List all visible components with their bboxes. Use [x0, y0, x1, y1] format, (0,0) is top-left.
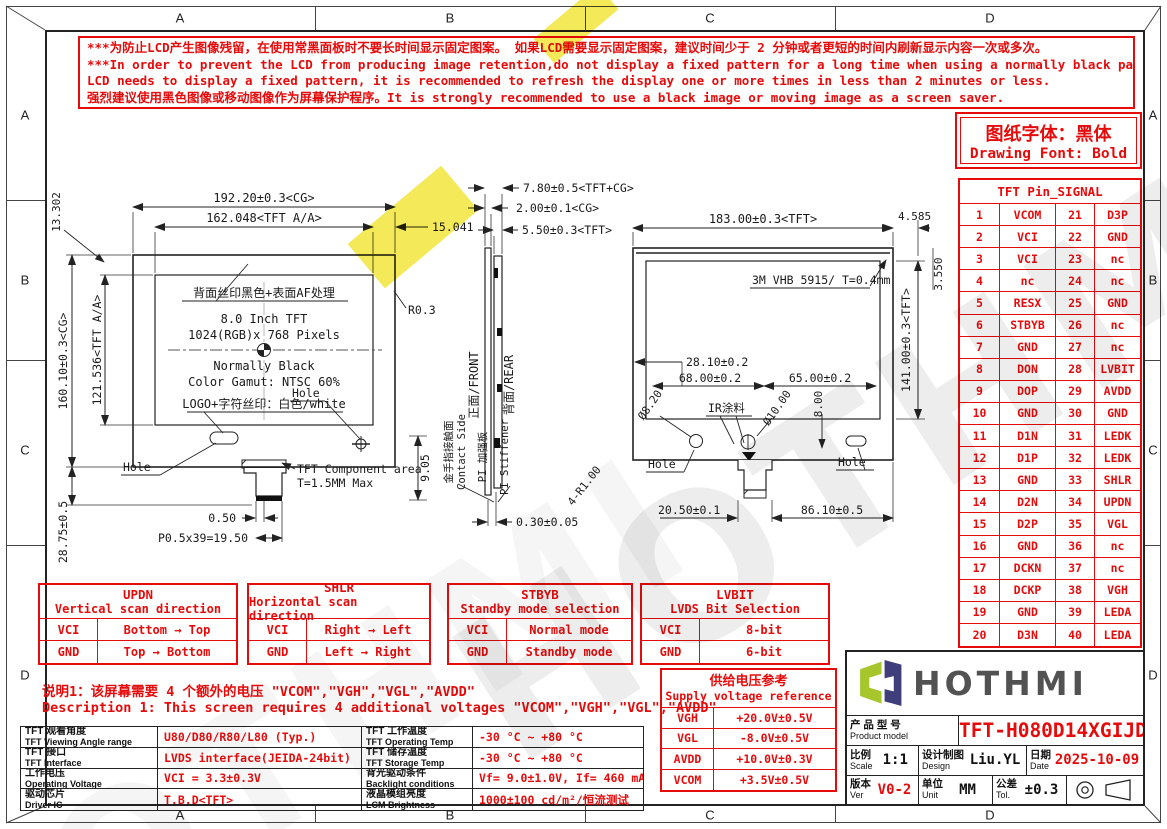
frame-tick [835, 806, 836, 823]
dim-gap: 15.041 [432, 220, 474, 234]
font-note-en: Drawing Font: Bold [970, 146, 1127, 162]
front-side-label: 正面/FRONT [467, 351, 481, 418]
pin-number-cell: 25 [1055, 292, 1094, 314]
spec-value: U80/D80/R80/L80 (Typ.) [157, 727, 361, 748]
pin-signal-cell: nc [1094, 536, 1140, 558]
pin-signal-cell: DON [999, 359, 1055, 381]
pin-signal-cell: RESX [999, 292, 1055, 314]
title-block: HOTHMI 产 品 型 号 Product model TFT-H080D14… [845, 650, 1145, 806]
pin-signal-cell: VGH [1094, 580, 1140, 602]
pin-signal-cell: LEDK [1094, 447, 1140, 469]
spec-label: TFT 接口TFT Interface [21, 748, 157, 769]
panel-mode-text: Normally Black [213, 359, 315, 373]
hole-label: Hole [292, 386, 320, 400]
pin-number-cell: 15 [960, 513, 999, 535]
spec-label: 背光驱动条件Backlight conditions [361, 769, 472, 790]
unit-label-zh: 单位 [922, 779, 943, 790]
hole-label: Hole [838, 455, 866, 469]
pin-signal-cell: nc [999, 270, 1055, 292]
dim-pi-thickness: 0.30±0.05 [516, 515, 578, 529]
grid-row-label: C [1148, 443, 1157, 458]
pin-signal-cell: nc [1094, 315, 1140, 337]
scan-table-title: UPDN [123, 587, 153, 602]
pin-number-cell: 5 [960, 292, 999, 314]
hothmi-logo-icon [855, 657, 905, 709]
pin-signal-cell: LVBIT [1094, 359, 1140, 381]
projection-symbol-icon [1074, 779, 1136, 801]
rear-side-label: 背面/REAR [502, 354, 516, 415]
dim-2810: 28.10±0.2 [686, 355, 748, 369]
date-label-zh: 日期 [1030, 750, 1051, 761]
spec-label: 驱动芯片Driver IC [21, 789, 157, 810]
dim-tft-height: 141.00±0.3<TFT> [899, 288, 913, 392]
model-label-zh: 产 品 型 号 [850, 720, 908, 731]
design-label-zh: 设计制图 [922, 750, 964, 761]
spec-value: -30 °C ~ +80 °C [472, 748, 643, 769]
pin-signal-cell: VGL [1094, 513, 1140, 535]
scan-signal-label: VCI [642, 619, 700, 641]
pin-signal-cell: LEDA [1094, 602, 1140, 624]
supply-value: +3.5V±0.5V [714, 770, 835, 791]
pin-number-cell: 20 [960, 624, 999, 646]
dim-pitch: P0.5x39=19.50 [158, 531, 248, 545]
scan-signal-label: GND [449, 641, 507, 663]
scan-table-rows: VCI8-bitGND6-bit [642, 619, 828, 663]
pin-signal-cell: GND [1094, 292, 1140, 314]
component-area-note: TFT Component area [297, 462, 422, 476]
dim-tft-width: 183.00±0.3<TFT> [709, 212, 817, 226]
pin-signal-cell: D1N [999, 425, 1055, 447]
supply-signal-label: AVDD [662, 749, 714, 770]
grid-row-label: A [21, 108, 30, 123]
pin-number-cell: 27 [1055, 337, 1094, 359]
spec-label-en: Operating Voltage [25, 779, 157, 789]
pin-signal-cell: nc [1094, 248, 1140, 270]
scan-signal-label: GND [40, 641, 98, 663]
supply-signal-label: VCOM [662, 770, 714, 791]
unit-value: MM [959, 782, 976, 798]
component-area-thickness: T=1.5MM Max [297, 476, 373, 490]
supply-signal-label: VGH [662, 708, 714, 729]
pin-number-cell: 14 [960, 491, 999, 513]
supply-signal-label: VGL [662, 729, 714, 750]
dim-3550: 3.550 [932, 257, 945, 290]
pin-signal-cell: UPDN [1094, 491, 1140, 513]
dim-corner-r: 4-R1.00 [565, 464, 604, 509]
pin-number-cell: 38 [1055, 580, 1094, 602]
date-label-en: Date [1030, 761, 1051, 771]
grid-col-label: C [705, 11, 714, 26]
pin-table-rows: 1VCOM21D3P2VCI22GND3VCI23nc4nc24nc5RESX2… [960, 204, 1140, 646]
scan-signal-label: GND [642, 641, 700, 663]
spec-label-zh: 工作电压 [25, 769, 157, 779]
pin-number-cell: 24 [1055, 270, 1094, 292]
spec-label-en: TFT Operating Temp [366, 737, 472, 747]
ver-label-en: Ver [850, 790, 871, 800]
pin-signal-cell: LEDK [1094, 425, 1140, 447]
spec-value: T.B.D<TFT> [157, 789, 361, 810]
pin-number-cell: 30 [1055, 403, 1094, 425]
supply-value: +10.0V±0.3V [714, 749, 835, 770]
scan-table-subtitle: Vertical scan direction [55, 602, 221, 616]
drawing-sheet: A B C D A B C D A B C D A B C D ***为防止LC… [0, 0, 1167, 829]
warning-line: 强烈建议使用黑色图像或移动图像作为屏幕保护程序。It is strongly r… [87, 90, 1126, 107]
scan-table-rows: VCINormal modeGNDStandby mode [449, 619, 631, 663]
spec-label-en: Backlight conditions [366, 779, 472, 789]
tol-label-zh: 公差 [996, 779, 1017, 790]
pin-signal-cell: GND [1094, 226, 1140, 248]
pin-number-cell: 36 [1055, 536, 1094, 558]
note1-en: Description 1: This screen requires 4 ad… [42, 700, 717, 716]
grid-row-label: B [1149, 273, 1158, 288]
scan-value: Right → Left [307, 619, 429, 641]
pin-number-cell: 26 [1055, 315, 1094, 337]
scan-value: Normal mode [507, 619, 631, 641]
logo-row: HOTHMI [847, 652, 1143, 716]
pin-number-cell: 33 [1055, 469, 1094, 491]
scan-value: Standby mode [507, 641, 631, 663]
frame-tick [315, 6, 316, 30]
dim-cg-height: 160.10±0.3<CG> [56, 312, 70, 409]
pin-signal-cell: STBYB [999, 315, 1055, 337]
warning-line: LCD needs to display a fixed pattern, it… [87, 73, 1126, 90]
ver-unit-tol-row: 版本 Ver V0-2 单位 Unit MM 公差 Tol. ±0.3 [847, 776, 1143, 804]
scan-value: 8-bit [700, 619, 828, 641]
scan-value: Top → Bottom [98, 641, 236, 663]
spec-value: VCI = 3.3±0.3V [157, 769, 361, 790]
warning-line: ***In order to prevent the LCD from prod… [87, 57, 1126, 74]
pin-number-cell: 13 [960, 469, 999, 491]
scale-label-zh: 比例 [850, 750, 873, 761]
scan-value: 6-bit [700, 641, 828, 663]
pin-signal-cell: DOP [999, 381, 1055, 403]
model-row: 产 品 型 号 Product model TFT-H080D14XGIJDKG… [847, 716, 1143, 746]
pin-number-cell: 18 [960, 580, 999, 602]
dim-total-thickness: 7.80±0.5<TFT+CG> [523, 181, 634, 195]
frame-tick [1145, 200, 1161, 201]
scan-signal-label: VCI [40, 619, 98, 641]
pin-signal-cell: VCI [999, 226, 1055, 248]
dim-tft-thickness: 5.50±0.3<TFT> [522, 223, 612, 237]
pin-number-cell: 1 [960, 204, 999, 226]
grid-col-label: D [985, 808, 994, 823]
logo-silk-note: LOGO+字符丝印：白色/white [182, 396, 345, 411]
scan-table-rows: VCIRight → LeftGNDLeft → Right [249, 619, 429, 663]
spec-value: Vf= 9.0±1.0V, If= 460 mA [472, 769, 643, 790]
scale-design-date-row: 比例 Scale 1:1 设计制图 Design Liu.YL 日期 Date … [847, 746, 1143, 775]
pin-signal-cell: AVDD [1094, 381, 1140, 403]
contact-side-zh: 金手指接触面 [442, 421, 455, 484]
spec-label-zh: TFT 接口 [25, 748, 157, 758]
grid-col-label: A [176, 11, 185, 26]
pin-number-cell: 19 [960, 602, 999, 624]
pin-signal-cell: GND [999, 602, 1055, 624]
scan-signal-label: VCI [249, 619, 307, 641]
grid-col-label: B [446, 11, 455, 26]
pi-stiffener-zh: PI 加强板 [476, 431, 489, 482]
drawing-font-note: 图纸字体：黑体 Drawing Font: Bold [955, 112, 1142, 169]
pin-signal-cell: SHLR [1094, 469, 1140, 491]
spec-label: TFT 观看角度TFT Viewing Angle range [21, 727, 157, 748]
spec-label-en: TFT Interface [25, 758, 157, 768]
scan-value: Bottom → Top [98, 619, 236, 641]
note1-zh: 说明1：该屏幕需要 4 个额外的电压 "VCOM","VGH","VGL","A… [42, 680, 475, 700]
dim-cg-thickness: 2.00±0.1<CG> [516, 201, 599, 215]
vhb-tape-note: 3M VHB 5915/ T=0.4mm [752, 273, 891, 287]
spec-label-zh: 背光驱动条件 [366, 769, 472, 779]
pin-signal-cell: nc [1094, 337, 1140, 359]
front-view: 192.20±0.3<CG> 162.048<TFT A/A> 15.041 1… [50, 191, 474, 563]
date-value: 2025-10-09 [1055, 752, 1139, 768]
pin-number-cell: 34 [1055, 491, 1094, 513]
scan-signal-label: GND [249, 641, 307, 663]
pin-signal-cell: VCI [999, 248, 1055, 270]
hole-label: Hole [648, 457, 676, 471]
pin-signal-cell: LEDA [1094, 624, 1140, 646]
hole-label: Hole [123, 460, 151, 474]
warning-line: ***为防止LCD产生图像残留，在使用常黑面板时不要长时间显示固定图案。 如果L… [87, 40, 1126, 57]
pin-number-cell: 12 [960, 447, 999, 469]
dim-8610: 86.10±0.5 [801, 503, 863, 517]
dim-aa-width: 162.048<TFT A/A> [206, 211, 322, 225]
scale-value: 1:1 [883, 752, 908, 768]
panel-size-text: 8.0 Inch TFT [221, 312, 308, 326]
spec-label-zh: TFT 工作温度 [366, 727, 472, 737]
pin-number-cell: 2 [960, 226, 999, 248]
spec-label-en: Driver IC [25, 800, 157, 810]
frame-tick [1145, 360, 1161, 361]
spec-value: -30 °C ~ +80 °C [472, 727, 643, 748]
pin-signal-cell: nc [1094, 558, 1140, 580]
pin-number-cell: 32 [1055, 447, 1094, 469]
pin-signal-cell: GND [999, 536, 1055, 558]
corner-radius-label: R0.3 [408, 303, 436, 317]
pin-number-cell: 28 [1055, 359, 1094, 381]
scan-table-rows: VCIBottom → TopGNDTop → Bottom [40, 619, 236, 663]
pi-stiffener-en: PI Stiffener [499, 419, 511, 495]
dim-top-offset: 13.302 [50, 192, 63, 232]
spec-label-zh: 液晶模组亮度 [366, 790, 472, 800]
spec-label-en: LCM Brightness [366, 800, 472, 810]
pin-signal-cell: DCKN [999, 558, 1055, 580]
dim-6800: 68.00±0.2 [679, 371, 741, 385]
pin-signal-cell: nc [1094, 270, 1140, 292]
retention-warning-box: ***为防止LCD产生图像残留，在使用常黑面板时不要长时间显示固定图案。 如果L… [78, 36, 1135, 109]
spec-label: TFT 储存温度TFT Storage Temp [361, 748, 472, 769]
rear-view: 183.00±0.3<TFT> 4.585 3.550 141.00±0.3<T… [633, 210, 945, 522]
scan-table-title: STBYB [521, 587, 559, 602]
lvbit-table: LVBIT LVDS Bit Selection VCI8-bitGND6-bi… [640, 583, 830, 665]
supply-value: +20.0V±0.5V [714, 708, 835, 729]
grid-row-label: D [20, 668, 29, 683]
spec-label: TFT 工作温度TFT Operating Temp [361, 727, 472, 748]
model-label-en: Product model [850, 731, 908, 741]
version-value: V0-2 [878, 782, 912, 798]
dim-bottom: 28.75±0.5 [56, 501, 70, 563]
dim-905: 9.05 [418, 454, 432, 482]
pin-signal-cell: GND [999, 469, 1055, 491]
stbyb-table: STBYB Standby mode selection VCINormal m… [447, 583, 633, 665]
design-label-en: Design [922, 761, 964, 771]
spec-label-zh: 驱动芯片 [25, 790, 157, 800]
spec-label: 工作电压Operating Voltage [21, 769, 157, 790]
silk-note: 背面丝印黑色+表面AF处理 [193, 286, 335, 300]
pin-signal-cell: D2P [999, 513, 1055, 535]
dim-cg-width: 192.20±0.3<CG> [213, 191, 314, 205]
dim-800: 8.00 [812, 391, 825, 418]
contact-side-en: Contact Side [456, 414, 468, 490]
pin-number-cell: 31 [1055, 425, 1094, 447]
font-note-zh: 图纸字体：黑体 [986, 120, 1112, 146]
pin-number-cell: 4 [960, 270, 999, 292]
pin-signal-cell: VCOM [999, 204, 1055, 226]
supply-title-en: Supply voltage reference [665, 690, 831, 703]
pin-number-cell: 23 [1055, 248, 1094, 270]
pin-number-cell: 40 [1055, 624, 1094, 646]
supply-value: -8.0V±0.5V [714, 729, 835, 750]
pin-signal-table: TFT Pin_SIGNAL 1VCOM21D3P2VCI22GND3VCI23… [958, 178, 1142, 648]
pin-number-cell: 6 [960, 315, 999, 337]
tol-label-en: Tol. [996, 790, 1017, 800]
dim-aa-height: 121.536<TFT A/A> [90, 295, 104, 406]
pin-number-cell: 7 [960, 337, 999, 359]
grid-col-label: C [705, 808, 714, 823]
pin-signal-cell: GND [1094, 403, 1140, 425]
frame-tick [835, 6, 836, 30]
pin-signal-cell: GND [999, 337, 1055, 359]
pin-signal-cell: D1P [999, 447, 1055, 469]
pin-signal-cell: DCKP [999, 580, 1055, 602]
pin-signal-cell: D3N [999, 624, 1055, 646]
pin-number-cell: 16 [960, 536, 999, 558]
panel-res-text: 1024(RGB)x 768 Pixels [188, 328, 340, 342]
spec-value: 1000±100 cd/m²/恒流测试 [472, 789, 643, 810]
grid-col-label: D [985, 11, 994, 26]
grid-row-label: D [1148, 668, 1157, 683]
pin-signal-cell: GND [999, 403, 1055, 425]
pin-number-cell: 10 [960, 403, 999, 425]
supply-title-zh: 供给电压参考 [709, 674, 787, 690]
pin-signal-cell: D2N [999, 491, 1055, 513]
dim-6500: 65.00±0.2 [789, 371, 851, 385]
supply-voltage-table: 供给电压参考 Supply voltage reference VGH+20.0… [660, 668, 837, 792]
pin-number-cell: 21 [1055, 204, 1094, 226]
grid-row-label: A [1149, 108, 1158, 123]
frame-tick [585, 6, 586, 30]
spec-label-en: TFT Storage Temp [366, 758, 472, 768]
pin-number-cell: 11 [960, 425, 999, 447]
unit-label-en: Unit [922, 790, 943, 800]
dim-4585: 4.585 [898, 210, 931, 223]
scan-table-subtitle: Standby mode selection [461, 602, 620, 616]
spec-label-zh: TFT 观看角度 [25, 727, 157, 737]
pin-number-cell: 8 [960, 359, 999, 381]
scan-value: Left → Right [307, 641, 429, 663]
pin-number-cell: 22 [1055, 226, 1094, 248]
spec-value: LVDS interface(JEIDA-24bit) [157, 748, 361, 769]
pin-signal-cell: D3P [1094, 204, 1140, 226]
pin-number-cell: 3 [960, 248, 999, 270]
frame-tick [1145, 545, 1161, 546]
scan-table-title: SHLR [324, 580, 354, 595]
scan-signal-label: VCI [449, 619, 507, 641]
updn-table: UPDN Vertical scan direction VCIBottom →… [38, 583, 238, 665]
supply-rows: VGH+20.0V±0.5VVGL-8.0V±0.5VAVDD+10.0V±0.… [662, 708, 835, 790]
scale-label-en: Scale [850, 761, 873, 771]
pin-number-cell: 39 [1055, 602, 1094, 624]
mechanical-drawing: 192.20±0.3<CG> 162.048<TFT A/A> 15.041 1… [20, 160, 955, 580]
dim-pad-width: 0.50 [208, 511, 236, 525]
pin-number-cell: 17 [960, 558, 999, 580]
ir-coating-label: IR涂料 [708, 401, 745, 415]
spec-table: TFT 观看角度TFT Viewing Angle rangeU80/D80/R… [20, 726, 644, 811]
spec-label: 液晶模组亮度LCM Brightness [361, 789, 472, 810]
spec-label-zh: TFT 储存温度 [366, 748, 472, 758]
pin-table-title: TFT Pin_SIGNAL [960, 180, 1140, 204]
pin-number-cell: 9 [960, 381, 999, 403]
scan-table-title: LVBIT [716, 587, 754, 602]
pin-number-cell: 29 [1055, 381, 1094, 403]
pin-number-cell: 37 [1055, 558, 1094, 580]
spec-label-en: TFT Viewing Angle range [25, 737, 157, 747]
scan-table-subtitle: LVDS Bit Selection [670, 602, 800, 616]
pin-number-cell: 35 [1055, 513, 1094, 535]
dim-2050: 20.50±0.1 [658, 503, 720, 517]
design-value: Liu.YL [970, 752, 1021, 768]
ver-label-zh: 版本 [850, 779, 871, 790]
hothmi-wordmark: HOTHMI [913, 664, 1088, 703]
product-model-value: TFT-H080D14XGIJDKG40 [959, 719, 1143, 742]
shlr-table: SHLR Horizontal scan direction VCIRight … [247, 583, 431, 665]
spec-rows: TFT 观看角度TFT Viewing Angle rangeU80/D80/R… [21, 727, 643, 810]
tolerance-value: ±0.3 [1025, 782, 1059, 798]
